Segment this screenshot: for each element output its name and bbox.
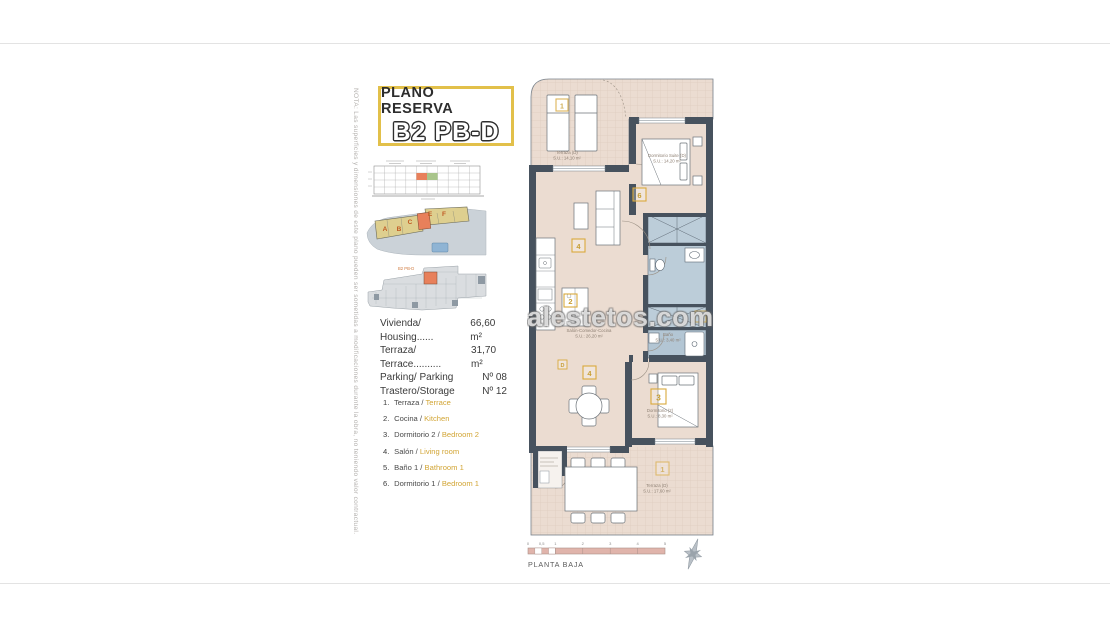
info-row-vivienda: Vivienda/ Housing...... 66,60 m² [380, 317, 507, 344]
legend-item-2: 2. Cocina / Kitchen [383, 411, 518, 427]
legend-es: Salón / [394, 447, 418, 456]
legend-es: Dormitorio 1 / [394, 479, 440, 488]
legend-en: Living room [420, 447, 459, 456]
legend-en: Bathroom 1 [425, 463, 464, 472]
svg-text:A: A [383, 226, 388, 233]
sofa [596, 191, 620, 245]
disclaimer-note: NOTA: Las superficies y dimensiones de e… [352, 88, 359, 530]
legend-en: Bedroom 1 [442, 479, 479, 488]
terrace-bottom-name: Terraza (D) [646, 483, 668, 488]
scale-bar: 0 0,5 1 2 3 4 5 PLANTA BAJA [527, 541, 667, 569]
svg-text:E: E [428, 211, 433, 218]
legend-item-4: 4. Salón / Living room [383, 444, 518, 460]
green-unit-cell [427, 173, 438, 180]
svg-text:D: D [561, 363, 565, 369]
svg-text:2: 2 [582, 541, 585, 546]
info-row-parking: Parking/ Parking Nº 08 [380, 371, 507, 385]
legend-item-1: 1. Terraza / Terrace [383, 395, 518, 411]
floor-location-minimap: B2 PB-D [362, 262, 492, 317]
svg-text:6: 6 [637, 191, 641, 200]
stairwell-cell-4 [374, 294, 379, 300]
legend-item-6: 6. Dormitorio 1 / Bedroom 1 [383, 476, 518, 492]
suite-area: S.U.: 14,20 m² [653, 159, 681, 164]
legend-item-5: 5. Baño 1 / Bathroom 1 [383, 460, 518, 476]
legend-en: Bedroom 2 [442, 430, 479, 439]
legend-es: Cocina / [394, 414, 422, 423]
legend-num: 1. [383, 395, 392, 411]
tag-dining: 4 [583, 366, 596, 379]
surface-info: Vivienda/ Housing...... 66,60 m² Terraza… [380, 317, 507, 398]
legend-num: 3. [383, 427, 392, 443]
bath-area: S.U.: 3,40 m² [655, 338, 681, 343]
svg-text:4: 4 [636, 541, 639, 546]
legend-es: Terraza / [394, 398, 424, 407]
bedroom2-name: Dormitorio (2) [647, 408, 674, 413]
svg-text:B: B [397, 226, 402, 233]
legend-es: Dormitorio 2 / [394, 430, 440, 439]
building-elevation-minimap [366, 158, 490, 202]
tag-door-d: D [558, 360, 567, 369]
stairwell-cell-2 [412, 302, 418, 308]
tag-bedroom2: 3 [651, 389, 666, 404]
legend-num: 2. [383, 411, 392, 427]
tag-suite: 6 [633, 188, 646, 201]
minimap-unit-label: B2 PB-D [398, 266, 414, 271]
site-plan-minimap: A B C E F [363, 205, 490, 260]
svg-text:3: 3 [656, 393, 661, 403]
terrace-bottom-area: S.U.: 17,60 m² [643, 489, 671, 494]
tag-terrace-top: 1 [556, 99, 568, 111]
svg-text:0,5: 0,5 [539, 541, 545, 546]
title-box: PLANO RESERVA B2 PB-D [378, 86, 514, 146]
top-border-line [0, 43, 1110, 44]
svg-text:1: 1 [554, 541, 557, 546]
legend-es: Baño 1 / [394, 463, 422, 472]
svg-text:1: 1 [560, 104, 564, 111]
highlighted-unit-cell [416, 173, 427, 180]
info-value: Nº 08 [482, 371, 507, 385]
svg-text:1: 1 [660, 465, 664, 474]
info-value: 66,60 m² [470, 317, 507, 344]
info-label: Parking/ Parking [380, 371, 453, 385]
svg-text:F: F [442, 211, 446, 218]
wardrobe-1 [648, 215, 706, 243]
legend-num: 6. [383, 476, 392, 492]
legend-item-3: 3. Dormitorio 2 / Bedroom 2 [383, 427, 518, 443]
legend-num: 5. [383, 460, 392, 476]
svg-text:5: 5 [664, 541, 667, 546]
scale-ticks: 0 0,5 1 2 3 4 5 [527, 541, 667, 546]
info-row-terraza: Terraza/ Terrace.......... 31,70 m² [380, 344, 507, 371]
pool [432, 243, 448, 252]
svg-text:0: 0 [527, 541, 530, 546]
tag-terrace-bottom: 1 [656, 462, 669, 475]
stairwell-cell-1 [478, 276, 485, 284]
suite-name: Dormitorio Suite (D) [648, 153, 687, 158]
room-legend: 1. Terraza / Terrace 2. Cocina / Kitchen… [383, 395, 518, 492]
technical-room [533, 446, 567, 488]
tag-living: 4 [572, 239, 585, 252]
highlighted-unit-floorcell [424, 272, 437, 284]
plan-title: PLANO RESERVA [381, 85, 511, 117]
floor-caption: PLANTA BAJA [528, 560, 584, 569]
info-label: Terraza/ Terrace.......... [380, 344, 471, 371]
info-label: Vivienda/ Housing...... [380, 317, 470, 344]
bottom-border-line [0, 583, 1110, 584]
terrace-top-area: S.U.: 14,10 m² [553, 156, 581, 161]
coffee-table [574, 203, 588, 229]
legend-en: Terrace [426, 398, 451, 407]
terrace-top-name: Terraza (D) [556, 150, 578, 155]
unit-code: B2 PB-D [392, 118, 499, 147]
salon-area: S.U.: 26,20 m² [575, 334, 603, 339]
watermark: alestetos.com [527, 302, 725, 333]
svg-text:C: C [408, 219, 413, 226]
north-compass-icon [677, 535, 710, 573]
info-value: 31,70 m² [471, 344, 507, 371]
plan-sheet: NOTA: Las superficies y dimensiones de e… [0, 0, 1110, 626]
bedroom2-area: S.U.: 8,30 m² [647, 414, 673, 419]
stairwell-cell-3 [452, 300, 458, 306]
legend-num: 4. [383, 444, 392, 460]
svg-text:3: 3 [609, 541, 612, 546]
legend-en: Kitchen [424, 414, 449, 423]
